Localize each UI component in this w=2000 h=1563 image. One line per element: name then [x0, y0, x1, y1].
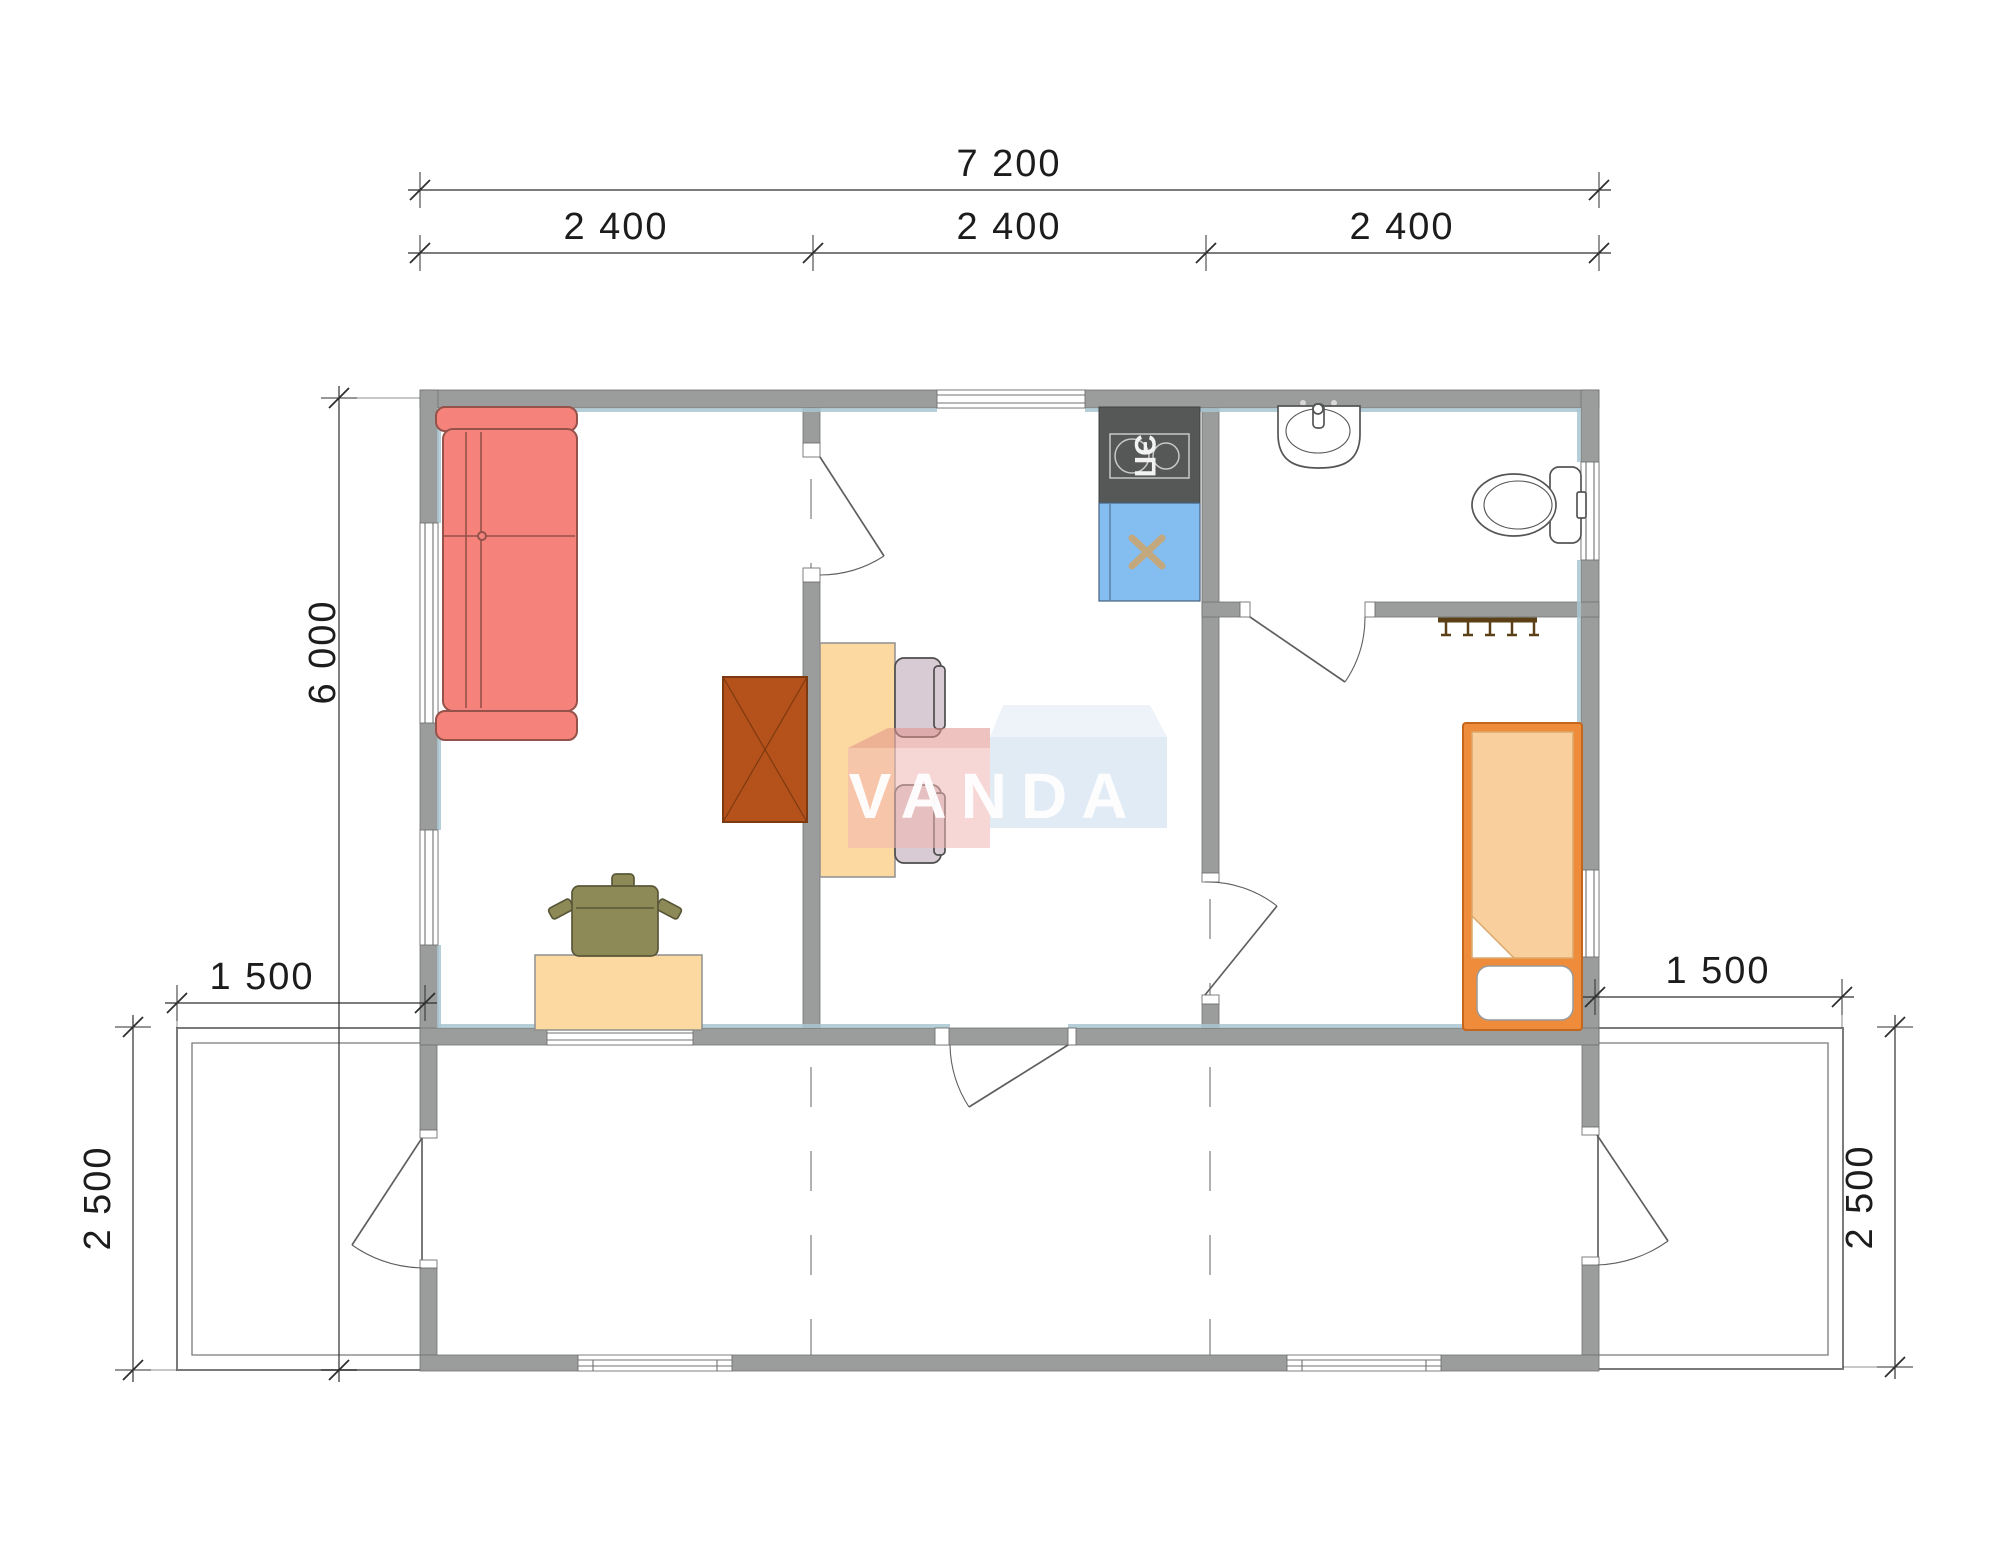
porch-rail-b [732, 1355, 1287, 1371]
wall-bathroom-right [1375, 602, 1599, 617]
terrace-left [177, 1028, 422, 1370]
dim-module-3: 2 400 [1349, 206, 1454, 248]
stove-label: ЭП [1128, 435, 1161, 478]
washbasin [1278, 400, 1360, 468]
office-desk [535, 955, 702, 1030]
dim-module-2: 2 400 [956, 206, 1061, 248]
door-entrance [950, 1045, 1068, 1107]
door-living-middle [820, 457, 884, 575]
windows [420, 390, 1599, 1371]
porch-wall-left-lower [420, 1268, 437, 1355]
walls [420, 390, 1599, 1371]
porch-wall-right-upper [1582, 1045, 1599, 1127]
logo-text: VANDA [849, 760, 1142, 832]
porch-rail-c [1441, 1355, 1599, 1371]
dim-terrace-left-width: 1 500 [209, 956, 314, 998]
porch-rail-a [420, 1355, 578, 1371]
terrace-left-outline [177, 1028, 422, 1370]
window-left-1 [420, 523, 438, 723]
office-chair [548, 874, 683, 956]
window-porch-rail-left [578, 1355, 732, 1371]
window-bedroom-right [1581, 870, 1599, 957]
coat-rack [1438, 620, 1539, 635]
dim-terrace-right-width: 1 500 [1665, 950, 1770, 992]
window-left-2 [420, 830, 438, 945]
dim-module-1: 2 400 [563, 206, 668, 248]
door-porch-left [352, 1138, 422, 1268]
dim-top-total: 7 200 [956, 143, 1061, 185]
door-jambs [420, 443, 1599, 1268]
dim-terrace-left-depth: 2 500 [77, 1145, 119, 1250]
electric-stove: ЭП [1099, 407, 1200, 503]
terrace-right-outline [1598, 1028, 1843, 1369]
dim-side-total: 6 000 [302, 599, 344, 704]
partition-living-upper [803, 408, 820, 443]
door-porch-right [1597, 1135, 1668, 1265]
kitchen-sink [1099, 503, 1200, 601]
floor-plan-canvas: ЭП [0, 0, 2000, 1563]
partition-right-upper [1202, 408, 1219, 873]
door-bedroom [1205, 882, 1277, 995]
terrace-left-inner-rail [192, 1043, 422, 1355]
toilet [1472, 467, 1586, 543]
window-porch-rail-right [1287, 1355, 1441, 1371]
wardrobe [723, 677, 807, 822]
terrace-right [1598, 1028, 1843, 1369]
window-top-middle [937, 390, 1085, 408]
dining-chair-1 [895, 658, 945, 737]
door-bathroom [1250, 617, 1365, 682]
dim-terrace-right-depth: 2 500 [1839, 1144, 1881, 1249]
porch-wall-right-lower [1582, 1265, 1599, 1355]
terrace-right-inner-rail [1598, 1043, 1828, 1355]
wall-bathroom-left [1202, 602, 1240, 617]
porch-wall-left-upper [420, 1045, 437, 1130]
single-bed [1463, 723, 1582, 1030]
floor-plan-drawing: ЭП [0, 0, 2000, 1563]
corner-sofa [436, 407, 577, 740]
logo-blue-top-face [990, 705, 1167, 737]
